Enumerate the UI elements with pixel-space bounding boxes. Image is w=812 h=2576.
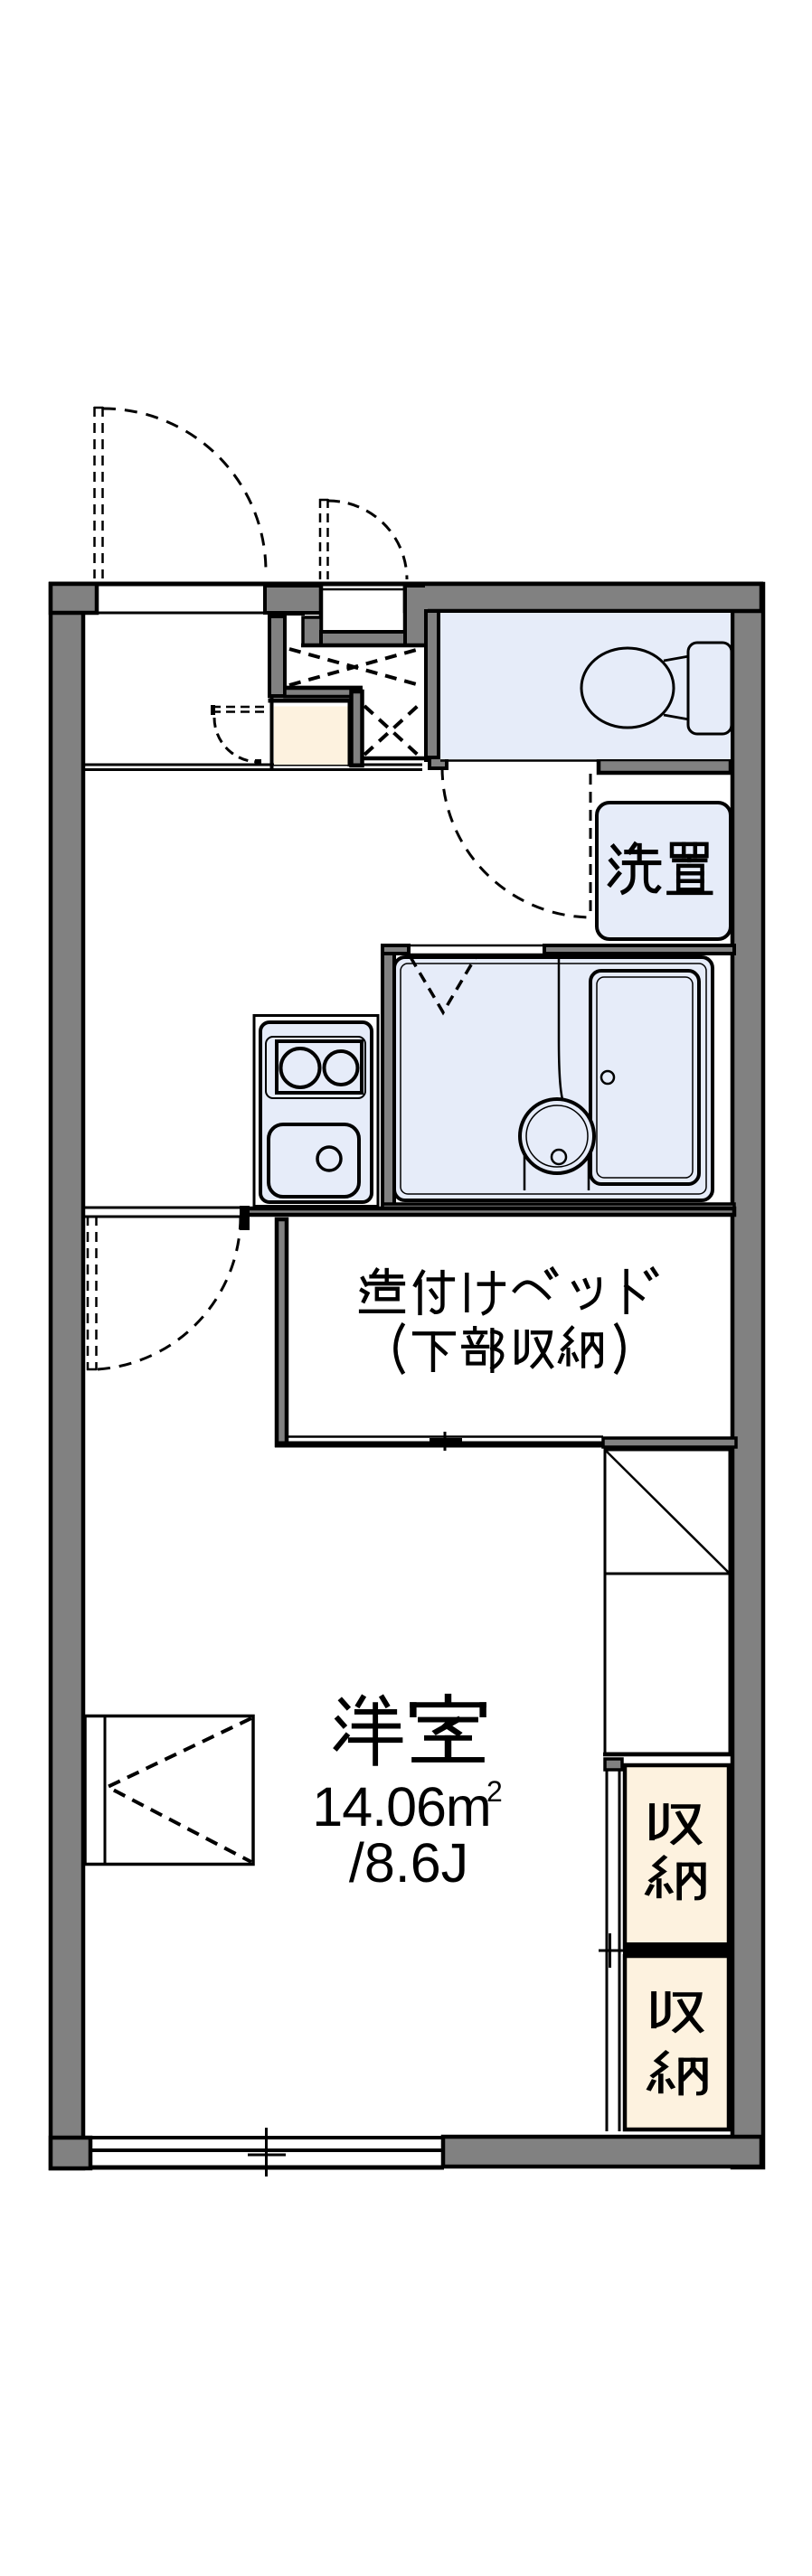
svg-text:/8.6J: /8.6J <box>349 1832 468 1894</box>
svg-text:2: 2 <box>486 1775 503 1808</box>
svg-text:14.06m: 14.06m <box>312 1776 490 1838</box>
